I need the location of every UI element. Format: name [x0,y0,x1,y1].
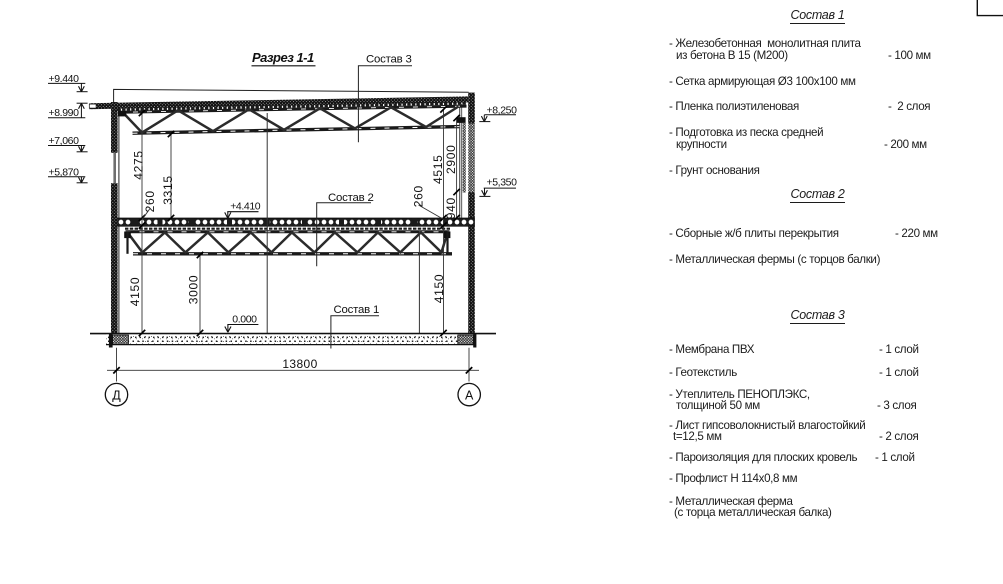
svg-text:4275: 4275 [132,150,146,180]
svg-text:Разрез 1-1: Разрез 1-1 [252,50,314,65]
svg-text:Д: Д [112,388,121,402]
svg-text:+4.410: +4.410 [230,201,261,213]
svg-text:3315: 3315 [161,175,175,205]
svg-text:+7,060: +7,060 [49,135,80,147]
svg-text:4150: 4150 [128,277,142,307]
svg-text:+8,250: +8,250 [487,104,518,116]
svg-text:3000: 3000 [187,275,201,305]
svg-text:13800: 13800 [282,357,317,371]
svg-text:+8.990: +8.990 [49,107,80,119]
svg-text:Состав 3: Состав 3 [366,54,412,66]
svg-text:0.000: 0.000 [232,313,257,325]
svg-text:4150: 4150 [432,274,446,304]
svg-text:Состав 1: Состав 1 [334,304,380,316]
svg-text:Состав 2: Состав 2 [328,192,374,204]
svg-text:940: 940 [444,197,458,219]
svg-text:4515: 4515 [431,155,445,185]
svg-text:+9.440: +9.440 [49,73,80,85]
svg-text:А: А [465,388,474,402]
svg-text:260: 260 [412,185,426,207]
svg-text:+5,870: +5,870 [49,166,80,178]
svg-text:2900: 2900 [444,145,458,175]
svg-text:+5,350: +5,350 [487,177,518,189]
svg-text:260: 260 [143,190,157,212]
